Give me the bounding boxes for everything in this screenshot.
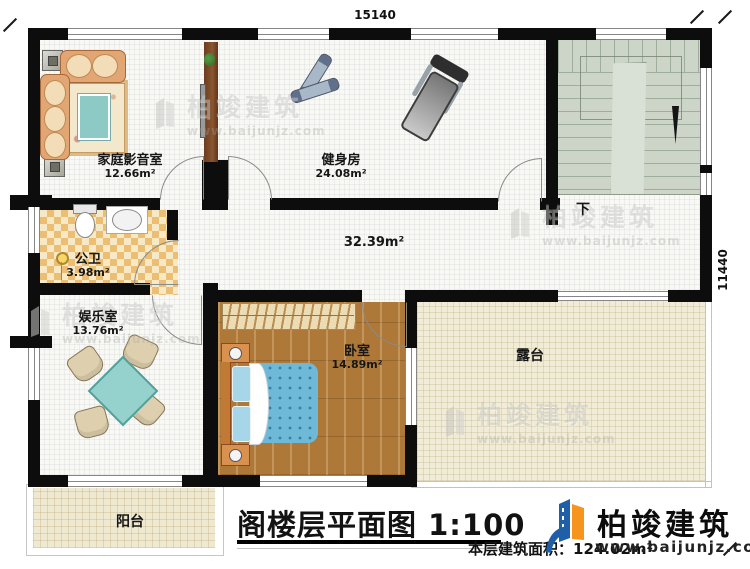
terrace-parapet	[705, 296, 706, 487]
window	[28, 348, 40, 400]
wall-segment	[28, 28, 68, 40]
window	[68, 28, 182, 40]
wall-segment	[28, 283, 150, 295]
sink-icon	[112, 209, 142, 231]
terrace-parapet	[411, 487, 712, 488]
nightstand-icon	[221, 343, 250, 363]
sofa-cushion	[92, 54, 118, 78]
window	[596, 28, 666, 40]
wall-segment	[167, 210, 178, 240]
title-underline-thin	[237, 548, 501, 549]
wall-segment	[367, 475, 417, 487]
window	[411, 28, 498, 40]
wall-segment	[668, 290, 712, 302]
sofa-cushion	[66, 54, 92, 78]
room-label-balcony: 阳台	[70, 511, 190, 531]
wall-segment	[405, 290, 417, 302]
title-underline	[237, 540, 501, 544]
tv-icon	[200, 84, 206, 138]
dimension-top: 15140	[345, 8, 405, 22]
room-label-entertainment: 娱乐室13.76m²	[38, 310, 158, 338]
window	[700, 68, 712, 165]
wall-segment	[700, 165, 712, 173]
room-label-terrace: 露台	[470, 345, 590, 365]
terrace-door-window	[558, 291, 668, 301]
wall-segment	[417, 290, 558, 302]
room-label-home-theater: 家庭影音室12.66m²	[70, 153, 190, 181]
nightstand-icon	[221, 444, 250, 466]
dimension-right: 11440	[716, 242, 730, 298]
floor-plan: 柏竣建筑www.baijunjz.com 柏竣建筑www.baijunjz.co…	[0, 0, 750, 569]
brand-website: www.baijunjz.com	[595, 538, 750, 556]
coffee-table-icon	[78, 94, 110, 140]
sofa-cushion	[44, 80, 66, 106]
wall-segment	[218, 290, 362, 302]
terrace-parapet	[411, 481, 712, 482]
terrace-parapet	[711, 296, 712, 487]
wall-segment	[182, 475, 218, 487]
stair-landing-panel	[610, 62, 648, 195]
bed-icon	[221, 362, 319, 444]
dimension-tick	[690, 10, 704, 24]
room-label-bathroom: 公卫3.98m²	[38, 252, 138, 280]
wall-segment	[203, 283, 218, 487]
wardrobe-icon	[222, 303, 356, 330]
wall-segment	[182, 28, 258, 40]
hall-area-label: 32.39m²	[314, 235, 434, 250]
wall-segment	[270, 198, 498, 210]
wall-segment	[700, 195, 712, 302]
brand-logo-icon	[541, 496, 591, 556]
wall-segment	[28, 40, 40, 195]
scale-label: 1:100	[428, 508, 525, 542]
toilet-icon	[75, 212, 95, 238]
sofa-cushion	[44, 132, 66, 158]
floor-terrace	[411, 296, 706, 481]
wall-segment	[202, 160, 228, 210]
wall-segment	[700, 28, 712, 68]
wall-segment	[28, 400, 40, 487]
wall-segment	[546, 28, 558, 225]
wall-segment	[218, 475, 260, 487]
window	[260, 475, 367, 487]
wall-segment	[28, 475, 68, 487]
window	[700, 173, 712, 195]
room-label-gym: 健身房24.08m²	[281, 153, 401, 181]
window	[258, 28, 329, 40]
dumbbells-icon	[288, 52, 342, 110]
sofa-cushion	[44, 106, 66, 132]
stair-bottom-edge	[558, 194, 700, 195]
dimension-tick	[718, 10, 732, 24]
window	[28, 207, 40, 253]
stairs-down-label: 下	[571, 199, 595, 219]
room-label-bedroom: 卧室14.89m²	[297, 344, 417, 372]
dimension-tick	[3, 18, 17, 32]
wardrobe-rod	[222, 315, 354, 316]
balcony-door-window	[68, 475, 182, 487]
wall-segment	[329, 28, 411, 40]
plant-icon	[204, 53, 215, 66]
